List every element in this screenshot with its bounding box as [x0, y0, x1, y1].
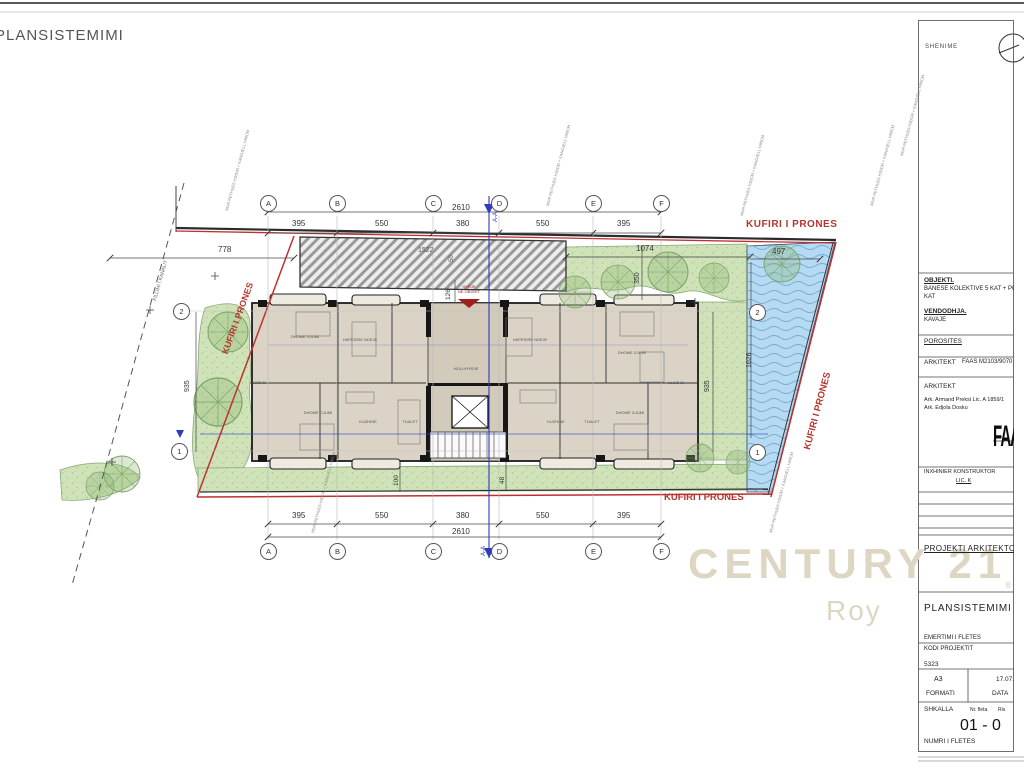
dim-1522: 1522 [418, 247, 434, 254]
title-block: SHENIME OBJEKTI. BANESE KOLEKTIVE 5 KAT … [918, 20, 1014, 752]
data-label: DATA [992, 690, 1008, 697]
kodi-value: 5323 [924, 661, 938, 668]
boundary-label-bottom: KUFIRI I PRONES [664, 492, 744, 503]
arkitekt-license: FAAS M2103/9070 [962, 359, 1012, 365]
room-label: HAPESIRE NDEJE [513, 337, 547, 342]
sheet-number: 01 - 0 [960, 717, 1001, 735]
dim-935-right: 935 [704, 380, 711, 392]
room-label: KUZHINE [547, 419, 565, 424]
dim-top-550b: 550 [536, 219, 549, 228]
grid-column-a-top: A [260, 195, 277, 212]
grid-row-2-right: 2 [749, 304, 766, 321]
room-label: TUALET [402, 419, 417, 424]
dim-100: 100 [393, 475, 400, 486]
dim-1026: 1026 [746, 352, 753, 368]
dim-bot-395b: 395 [617, 511, 630, 520]
shenime-label: SHENIME [925, 44, 958, 50]
grid-column-f-bottom: F [653, 543, 670, 560]
room-label: LLOZHE [668, 380, 684, 385]
shkalla-label: SHKALLA [924, 706, 953, 713]
dim-350: 350 [634, 272, 641, 284]
grid-row-1-right: 1 [749, 444, 766, 461]
inxhinier-label: INXHINIER KONSTRUKTOR [924, 469, 995, 475]
formati-label: FORMATI [926, 690, 955, 697]
room-label: HAPESIRE NDEJE [343, 337, 377, 342]
room-label: LLOZHE [250, 380, 266, 385]
section-label-bottom: A-A [481, 546, 487, 556]
room-label: DHOME GJUMI [616, 410, 644, 415]
numri-label: NUMRI I FLETES [924, 738, 975, 745]
emertimi-label: EMERTIMI I FLETES [924, 635, 981, 641]
dim-top-total: 2610 [452, 203, 470, 212]
watermark-agency: Roy [826, 595, 882, 627]
dim-1074: 1074 [636, 244, 654, 253]
dim-bot-total: 2610 [452, 527, 470, 536]
dim-778: 778 [218, 245, 231, 254]
room-label: DHOME GJUMI [618, 350, 646, 355]
grid-column-c-bottom: C [425, 543, 442, 560]
grid-column-f-top: F [653, 195, 670, 212]
room-label: KUZHINE [359, 419, 377, 424]
entry-label-line2: NE OBJEKT [458, 289, 480, 294]
dim-bot-550b: 550 [536, 511, 549, 520]
grid-column-d-bottom: D [491, 543, 508, 560]
nr-fleta-label: Nr. fleta [970, 707, 987, 713]
projekti-label: PROJEKTI ARKITEKTONIK [924, 544, 1014, 553]
dim-bot-550a: 550 [375, 511, 388, 520]
grid-column-a-bottom: A [260, 543, 277, 560]
grid-column-b-top: B [329, 195, 346, 212]
room-label: DHOME GJUMI [304, 410, 332, 415]
vendodhja-value: KAVAJE [924, 317, 946, 323]
page-title: PLANSISTEMIMI [0, 27, 124, 44]
grid-row-2-left: 2 [173, 303, 190, 320]
porosites-label: POROSITES [924, 338, 962, 345]
dim-bot-380: 380 [456, 511, 469, 520]
grid-column-c-top: C [425, 195, 442, 212]
objekti-line1: BANESE KOLEKTIVE 5 KAT + PODRUM [924, 286, 1014, 292]
dim-top-380: 380 [456, 219, 469, 228]
rishikimi-label: Ris [998, 707, 1005, 713]
plansistemimi-label: PLANSISTEMIMI [924, 603, 1012, 614]
objekti-label: OBJEKTI. [924, 277, 954, 284]
grid-column-e-bottom: E [585, 543, 602, 560]
section-label-top: A-A [493, 212, 499, 222]
data-value: 17.07.20 [996, 676, 1014, 683]
faas-logo: FAAS [993, 420, 1014, 454]
grid-column-e-top: E [585, 195, 602, 212]
arkitekt2-label: ARKITEKT [924, 383, 956, 390]
entry-label: HYRJE NE OBJEKT [455, 285, 483, 295]
room-label: HOLL/HYRJE [454, 366, 479, 371]
grid-column-b-bottom: B [329, 543, 346, 560]
grid-column-d-top: D [491, 195, 508, 212]
site-plan-linework [0, 0, 1024, 768]
dim-bot-395a: 395 [292, 511, 305, 520]
objekti-line2: KAT [924, 294, 935, 300]
arkitekt-name2: Ark. Edjola Dosku [924, 405, 968, 411]
grid-row-1-left: 1 [171, 443, 188, 460]
drawing-sheet: PLANSISTEMIMI CENTURY 21 ® Roy A B C D E… [0, 0, 1024, 768]
room-label: TUALET [584, 419, 599, 424]
arkitekt-name1: Ark. Armand Preksi Lic. A 1859/1 [924, 397, 1004, 403]
dim-497: 497 [772, 247, 785, 256]
dim-48: 48 [499, 477, 506, 484]
dim-126: 126 [445, 289, 452, 300]
room-label: DHOME GJUMI [291, 334, 319, 339]
dim-top-395a: 395 [292, 219, 305, 228]
vendodhja-label: VENDODHJA. [924, 308, 967, 315]
dim-top-395b: 395 [617, 219, 630, 228]
dim-50: 50 [449, 255, 455, 262]
formati-value: A3 [934, 676, 943, 683]
lic-value: LIC. K [956, 478, 971, 484]
boundary-label-top: KUFIRI I PRONES [746, 219, 837, 230]
arkitekt-label: ARKITEKT [924, 359, 956, 366]
dim-935-left: 935 [184, 380, 191, 392]
dim-top-550a: 550 [375, 219, 388, 228]
kodi-label: KODI PROJEKTIT [924, 646, 973, 652]
